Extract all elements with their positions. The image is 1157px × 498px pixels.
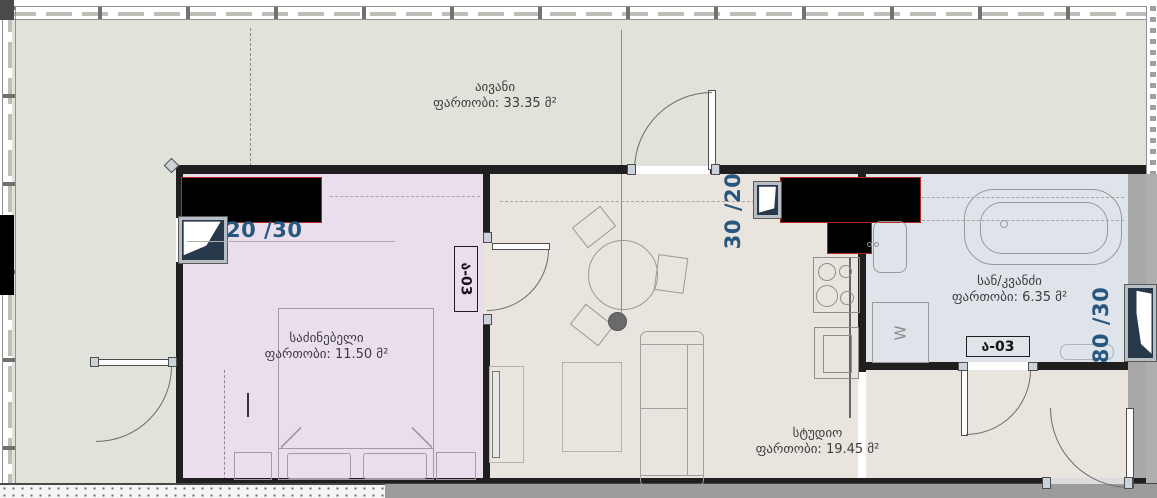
door-frame-post [1028, 362, 1038, 371]
room-name: სტუდიო [735, 426, 900, 442]
bathtub-drain [1000, 220, 1008, 228]
dimension-text: 80 /30 [1089, 287, 1113, 363]
window-icon [178, 216, 228, 264]
corner-block [0, 0, 14, 20]
sofa-backrest-line [687, 344, 688, 476]
rug [562, 362, 622, 452]
room-label-balcony: აივანი ფართობი: 33.35 მ² [365, 80, 625, 112]
room-name: სან/კვანძი [927, 274, 1092, 290]
tv [492, 371, 500, 458]
burner [840, 291, 854, 305]
pillow [363, 453, 427, 479]
structural-column [608, 312, 627, 331]
room-name: საძინებელი [244, 331, 409, 347]
floor-plan-canvas: W აივანი ფართობი: 33.35 მ² საძინებელი ფა… [0, 0, 1157, 498]
burner [818, 263, 836, 281]
door-tag-text: ა-03 [981, 339, 1014, 355]
kitchen-sink-basin [823, 335, 852, 373]
wall-segment [176, 262, 183, 483]
window-icon [753, 181, 782, 219]
blanket-fold [412, 427, 432, 448]
door-frame-post [711, 164, 720, 175]
redaction-box [0, 215, 14, 295]
redaction-box [827, 222, 872, 254]
door-frame-post [90, 357, 99, 367]
dimension-label-bedroom-window: 20 /30 [226, 218, 302, 242]
axis-line [250, 28, 251, 166]
door-frame-post [627, 164, 636, 175]
blanket-edge [279, 448, 433, 449]
redaction-box [780, 177, 921, 223]
dimension-text: 30 /20 [721, 173, 745, 249]
burner [839, 265, 852, 278]
dimension-label-kitchen-window: 30 /20 [718, 176, 748, 246]
nightstand [436, 452, 476, 480]
bottom-insulation-hatch [0, 483, 385, 498]
washing-machine-label: W [892, 325, 910, 340]
door-frame-post [168, 357, 177, 367]
door-tag-text: ა-03 [458, 262, 474, 295]
wall-segment [483, 174, 490, 234]
pillow [287, 453, 351, 479]
nightstand [234, 452, 272, 480]
room-name: აივანი [365, 80, 625, 96]
stove [813, 257, 860, 313]
toilet [873, 221, 907, 273]
door-tag-bathroom: ა-03 [966, 336, 1030, 357]
exterior-wall-hatch-right [1146, 6, 1157, 174]
dimension-label-bathroom-window: 80 /30 [1086, 286, 1116, 364]
door-frame-post [1124, 477, 1133, 489]
blanket-fold [281, 427, 301, 448]
room-area: ფართობი: 6.35 მ² [927, 290, 1092, 306]
sofa-armrest-line [641, 344, 703, 345]
room-balcony-left [12, 166, 176, 483]
wall-segment [866, 362, 962, 370]
dining-table [588, 240, 658, 310]
axis-line [224, 370, 225, 480]
room-area: ფართობი: 11.50 მ² [244, 347, 409, 363]
room-area: ფართობი: 33.35 მ² [365, 96, 625, 112]
wall-segment [176, 165, 636, 174]
room-label-bedroom: საძინებელი ფართობი: 11.50 მ² [244, 331, 409, 363]
room-area: ფართობი: 19.45 მ² [735, 442, 900, 458]
sofa [640, 331, 704, 487]
window-icon [1124, 284, 1157, 362]
ceiling-dash [500, 201, 755, 202]
washing-machine: W [872, 302, 929, 363]
toilet-hinge [874, 242, 879, 247]
sofa-armrest-line [641, 475, 703, 476]
balcony-railing-top [10, 6, 1146, 20]
wall-segment [710, 165, 1146, 174]
room-label-bathroom: სან/კვანძი ფართობი: 6.35 მ² [927, 274, 1092, 306]
room-label-studio: სტუდიო ფართობი: 19.45 მ² [735, 426, 900, 458]
axis-tick [247, 393, 249, 417]
burner [816, 285, 838, 307]
sofa-cushion-divider [641, 408, 687, 409]
bathtub-basin [980, 202, 1108, 254]
toilet-hinge [867, 242, 872, 247]
door-frame-post [483, 232, 492, 243]
kitchen-sink [814, 327, 859, 379]
door-leaf [97, 359, 172, 366]
door-frame-post [1042, 477, 1051, 489]
bathtub [964, 189, 1122, 265]
door-frame-post [483, 314, 492, 325]
ceiling-dash [330, 196, 480, 197]
door-frame-post [958, 362, 968, 371]
chair [654, 254, 689, 294]
door-tag-studio: ა-03 [454, 246, 478, 312]
